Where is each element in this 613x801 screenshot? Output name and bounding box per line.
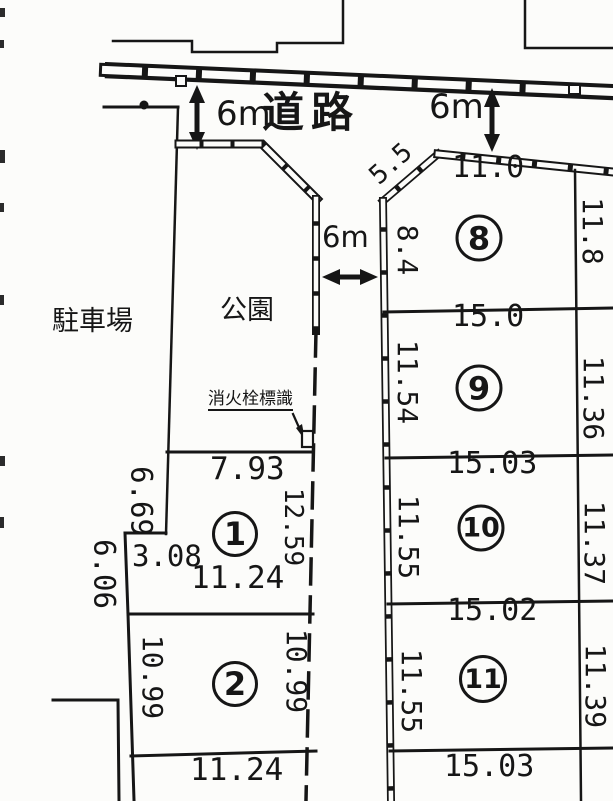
plot10-top-dim: 15.03 (447, 449, 537, 479)
block-west-boundary (383, 201, 391, 800)
road-width-right-label: 6m (429, 90, 484, 124)
plot9-right-dim: 11.36 (579, 356, 607, 440)
road-width-left-label: 6m (216, 97, 271, 131)
plot10-left-dim: 11.55 (394, 495, 422, 579)
plot2-right-dim: 10.99 (282, 629, 310, 713)
plot11-top-dim: 15.02 (447, 596, 537, 626)
plot11-left-dim: 11.55 (397, 649, 425, 733)
plot9-top-dim: 15.0 (452, 302, 524, 332)
building-outlines (113, 0, 613, 52)
scan-artifacts (0, 8, 5, 528)
plot2-left-dim: 10.99 (138, 635, 166, 719)
plot8-left-dim: 8.4 (393, 225, 421, 276)
boundary-dot (140, 101, 149, 110)
plot1-top-dim: 7.93 (210, 454, 285, 485)
plot11-right-dim: 11.39 (581, 644, 609, 728)
width-arrow-middle (322, 269, 378, 285)
plot1-right-dim: 12.59 (280, 488, 306, 566)
plot2-bottom-dim: 11.24 (190, 755, 283, 786)
plot2-number: 2 (212, 661, 258, 707)
parking-label: 駐車場 (52, 308, 133, 335)
plot1-bottom-dim: 11.24 (191, 563, 284, 594)
fire-hydrant-label: 消火栓標識 (208, 391, 293, 411)
plot9-number: 9 (456, 365, 503, 412)
plot11-bottom-dim: 15.03 (444, 752, 534, 782)
road-width-middle-label: 6m (322, 223, 369, 252)
plot10-number: 10 (458, 505, 505, 552)
plot8-number: 8 (456, 215, 503, 262)
plot9-left-dim: 11.54 (393, 340, 421, 424)
park-top-edge (179, 144, 317, 199)
plot1-left-upper-dim: 6.69 (127, 466, 156, 536)
road-marker-square-right (569, 85, 580, 94)
width-arrow-right (484, 88, 500, 152)
fire-hydrant-marker (293, 414, 313, 447)
plot11-number: 11 (459, 655, 507, 703)
plot10-right-dim: 11.37 (580, 501, 608, 585)
road-label: 道路 (262, 92, 360, 134)
plot8-top-dim: 11.0 (452, 153, 524, 183)
plot1-number: 1 (212, 511, 258, 557)
site-plan-map: 道路 6m 6m 6m 駐車場 公園 消火栓標識 5.5 11.0 8.4 11… (0, 0, 613, 801)
road-marker-square-left (176, 76, 186, 86)
plot1-left-lower-dim: 6.06 (90, 539, 119, 609)
park-label: 公園 (220, 297, 274, 324)
plot8-right-dim: 11.8 (578, 197, 606, 264)
